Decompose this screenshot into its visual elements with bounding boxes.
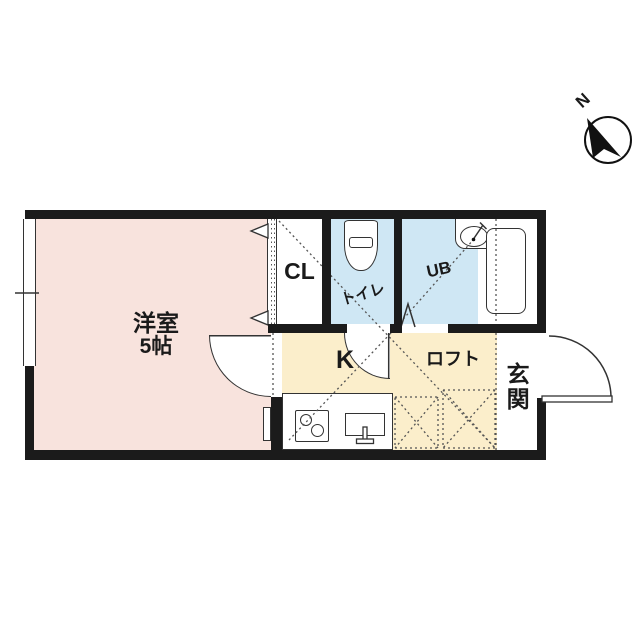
entrance-label: 玄関 <box>504 362 528 412</box>
wall-segment <box>537 210 546 333</box>
entrance-door-arc <box>549 336 611 396</box>
bathtub <box>486 228 526 314</box>
compass-north-arrow-icon <box>587 118 621 158</box>
wall-segment <box>390 324 398 333</box>
washbasin-bowl <box>460 226 488 247</box>
kitchen-sink <box>345 413 385 436</box>
closet-label: CL <box>277 259 322 283</box>
wall-segment <box>268 324 347 333</box>
window <box>23 219 36 366</box>
floor-plan: 洋室 5帖 CL トイレ UB K ロフト 玄関 N <box>0 0 639 640</box>
wall-segment <box>25 210 34 219</box>
wall-segment <box>322 210 331 333</box>
door-leaf-rest <box>263 407 271 441</box>
wall-segment <box>271 397 282 450</box>
wall-segment <box>25 366 34 460</box>
entrance-door-leaf <box>542 396 612 402</box>
toilet-seat-line <box>349 237 373 248</box>
compass-circle <box>585 117 631 163</box>
wall-segment <box>25 210 546 219</box>
stove-burner-icon <box>300 414 312 426</box>
wall-segment <box>448 324 537 333</box>
wall-segment <box>394 219 402 333</box>
wall-segment <box>25 450 546 460</box>
closet-sliding-door <box>267 219 277 324</box>
main-room-label: 洋室 <box>106 311 206 335</box>
wall-segment <box>537 398 546 460</box>
loft-label: ロフト <box>421 350 485 369</box>
main-room-size-label: 5帖 <box>106 336 206 358</box>
kitchen-label: K <box>333 347 357 373</box>
compass-north-label: N <box>573 90 594 111</box>
stove-burner-icon <box>311 424 324 437</box>
